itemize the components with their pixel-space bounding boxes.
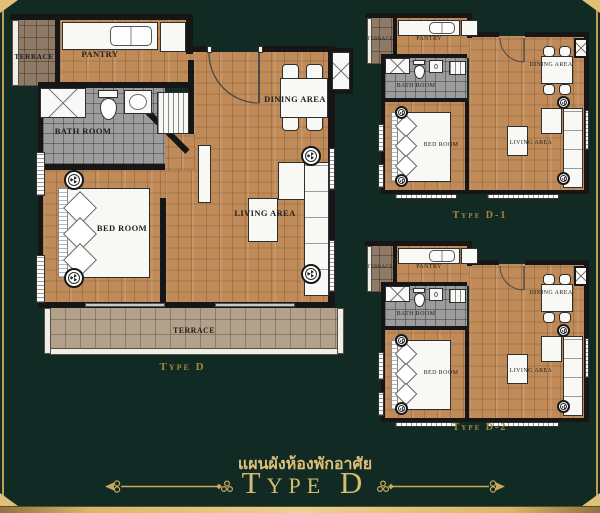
window bbox=[378, 124, 384, 152]
wall bbox=[525, 32, 589, 37]
fan-icon bbox=[557, 324, 570, 337]
divider-ornament-right bbox=[377, 480, 505, 493]
shaft-icon bbox=[574, 38, 588, 58]
room-label-bathroom: BATH ROOM bbox=[42, 126, 124, 136]
wall bbox=[10, 14, 193, 20]
divider-ornament-left bbox=[105, 480, 233, 493]
room-label-dining: DINING AREA bbox=[513, 290, 589, 296]
wall bbox=[365, 241, 471, 246]
frame-corner-bottom-right bbox=[582, 493, 600, 506]
window bbox=[487, 194, 559, 199]
fan-icon bbox=[64, 170, 84, 190]
wall bbox=[365, 13, 471, 18]
plan-title-type-d: Type D bbox=[10, 361, 355, 373]
sink-icon bbox=[429, 60, 443, 73]
sink-icon bbox=[429, 288, 443, 301]
room-label-bedroom: BED ROOM bbox=[72, 223, 172, 233]
fan-icon bbox=[557, 172, 570, 185]
room-label-pantry: PANTRY bbox=[70, 49, 130, 59]
room-label-living: LIVING AREA bbox=[493, 140, 569, 146]
window bbox=[378, 352, 384, 380]
wardrobe bbox=[449, 61, 466, 75]
sink-icon bbox=[124, 90, 152, 114]
cabinet bbox=[461, 248, 478, 264]
kitchen-sink-icon bbox=[429, 22, 455, 34]
fan-icon bbox=[395, 334, 408, 347]
window bbox=[395, 194, 457, 199]
room-label-dining: DINING AREA bbox=[513, 62, 589, 68]
room-label-terrace: TERRACE bbox=[365, 265, 395, 270]
room-label-living: LIVING AREA bbox=[220, 208, 310, 218]
window bbox=[36, 255, 45, 303]
wall bbox=[38, 164, 165, 170]
window bbox=[585, 110, 589, 150]
door-sill bbox=[85, 303, 165, 307]
window bbox=[585, 338, 589, 378]
fan-icon bbox=[64, 268, 84, 288]
fan-icon bbox=[301, 264, 321, 284]
wall bbox=[465, 330, 469, 422]
dining-table bbox=[541, 284, 573, 312]
frame-right-line bbox=[596, 0, 598, 506]
room-label-terrace: TERRACE bbox=[50, 326, 338, 335]
armchair bbox=[278, 162, 305, 200]
cabinet bbox=[160, 22, 186, 52]
room-label-living: LIVING AREA bbox=[493, 368, 569, 374]
chair bbox=[559, 84, 571, 95]
armchair bbox=[541, 108, 562, 134]
room-label-pantry: PANTRY bbox=[399, 36, 459, 42]
shower-icon bbox=[385, 286, 410, 302]
footer-title: Type D bbox=[242, 465, 369, 501]
wall bbox=[186, 14, 193, 54]
wardrobe bbox=[449, 289, 466, 303]
armchair bbox=[541, 336, 562, 362]
dining-table bbox=[541, 56, 573, 84]
cabinet bbox=[461, 20, 478, 36]
shower-icon bbox=[40, 88, 86, 118]
window bbox=[378, 164, 384, 188]
fan-icon bbox=[557, 400, 570, 413]
frame-bottom-bar bbox=[0, 506, 600, 513]
fan-icon bbox=[395, 106, 408, 119]
room-label-bedroom: BED ROOM bbox=[405, 370, 477, 376]
plan-title-type-d2: Type D-2 bbox=[365, 422, 595, 433]
kitchen-sink-icon bbox=[429, 250, 455, 262]
window bbox=[329, 240, 335, 292]
brochure-floorplan-page: TERRACE PANTRY BATH ROOM BED ROOM DINING… bbox=[0, 0, 600, 513]
room-label-terrace: TERRACE bbox=[10, 52, 58, 61]
fan-icon bbox=[395, 174, 408, 187]
wall bbox=[193, 46, 207, 52]
window bbox=[36, 152, 45, 196]
terrace-rail bbox=[337, 308, 344, 354]
window bbox=[329, 148, 335, 190]
wall bbox=[465, 102, 469, 194]
fan-icon bbox=[301, 146, 321, 166]
toilet-tank-icon bbox=[98, 90, 118, 98]
entry-door-arc bbox=[499, 37, 525, 63]
room-label-bedroom: BED ROOM bbox=[405, 142, 477, 148]
door-sill bbox=[215, 303, 295, 307]
fan-icon bbox=[395, 402, 408, 415]
shower-icon bbox=[385, 58, 410, 74]
room-label-bathroom: BATH ROOM bbox=[383, 83, 449, 89]
window bbox=[378, 392, 384, 416]
chair bbox=[543, 312, 555, 323]
shaft-icon bbox=[574, 266, 588, 286]
coffee-table bbox=[248, 198, 278, 242]
kitchen-sink-icon bbox=[110, 26, 152, 46]
plan-title-type-d1: Type D-1 bbox=[365, 210, 595, 221]
floorplan-type-d: TERRACE PANTRY BATH ROOM BED ROOM DINING… bbox=[10, 12, 355, 356]
chair bbox=[543, 84, 555, 95]
wardrobe bbox=[157, 92, 189, 134]
frame-corner-bottom-left bbox=[0, 493, 18, 506]
wall bbox=[160, 198, 166, 304]
fan-icon bbox=[557, 96, 570, 109]
shaft-icon bbox=[332, 52, 350, 90]
entry-door-arc bbox=[499, 265, 525, 291]
wall bbox=[381, 98, 467, 102]
terrace-rail bbox=[50, 348, 338, 355]
wall bbox=[525, 260, 589, 265]
chair bbox=[559, 312, 571, 323]
floorplan-type-d1: TERRACE PANTRY BATH ROOM BED ROOM DINING… bbox=[365, 8, 595, 200]
wall bbox=[263, 46, 335, 52]
wall bbox=[381, 326, 467, 330]
frame-left-line bbox=[2, 0, 4, 506]
tv-console bbox=[198, 145, 211, 203]
room-label-bathroom: BATH ROOM bbox=[383, 311, 449, 317]
room-label-dining: DINING AREA bbox=[250, 94, 340, 104]
room-label-terrace: TERRACE bbox=[365, 37, 395, 42]
floorplan-type-d2: TERRACE PANTRY BATH ROOM BED ROOM DINING… bbox=[365, 236, 595, 428]
room-label-pantry: PANTRY bbox=[399, 264, 459, 270]
